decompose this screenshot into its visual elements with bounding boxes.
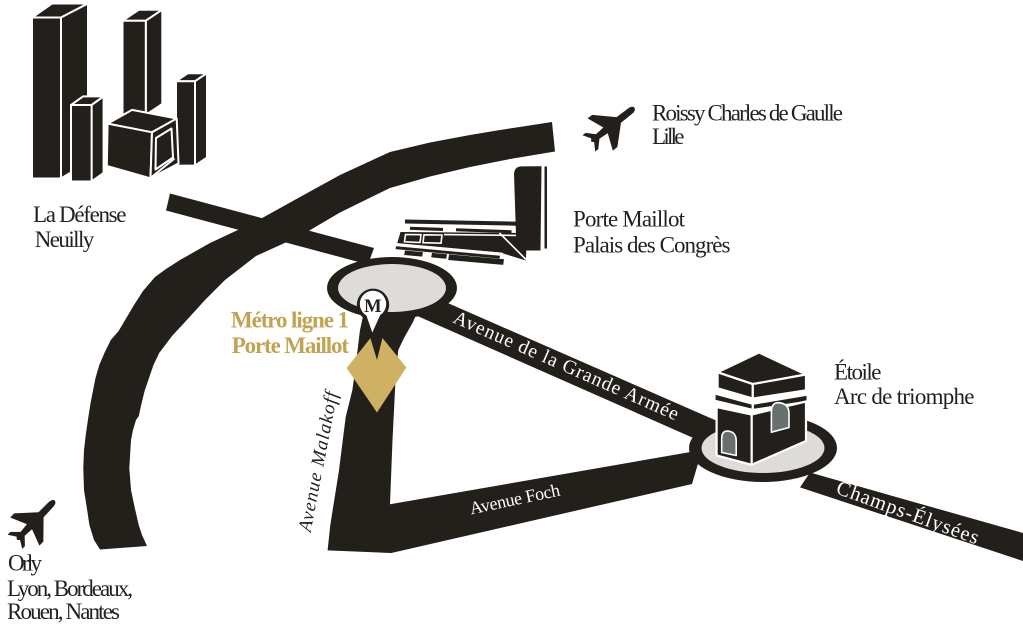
svg-text:Orly: Orly — [8, 551, 43, 576]
svg-text:Roissy Charles de Gaulle: Roissy Charles de Gaulle — [652, 100, 843, 125]
svg-text:Arc de triomphe: Arc de triomphe — [834, 384, 975, 409]
svg-text:Rouen, Nantes: Rouen, Nantes — [7, 599, 120, 624]
svg-text:La Défense: La Défense — [33, 202, 127, 227]
svg-text:Palais des Congrès: Palais des Congrès — [573, 233, 731, 258]
svg-text:M: M — [364, 297, 381, 317]
svg-text:Lille: Lille — [652, 124, 685, 149]
svg-text:Métro ligne 1: Métro ligne 1 — [231, 308, 349, 333]
svg-text:Neuilly: Neuilly — [35, 227, 95, 252]
svg-text:Lyon, Bordeaux,: Lyon, Bordeaux, — [7, 576, 133, 601]
svg-text:Porte Maillot: Porte Maillot — [232, 333, 350, 358]
svg-text:Étoile: Étoile — [834, 359, 882, 384]
svg-text:Porte Maillot: Porte Maillot — [573, 206, 686, 231]
